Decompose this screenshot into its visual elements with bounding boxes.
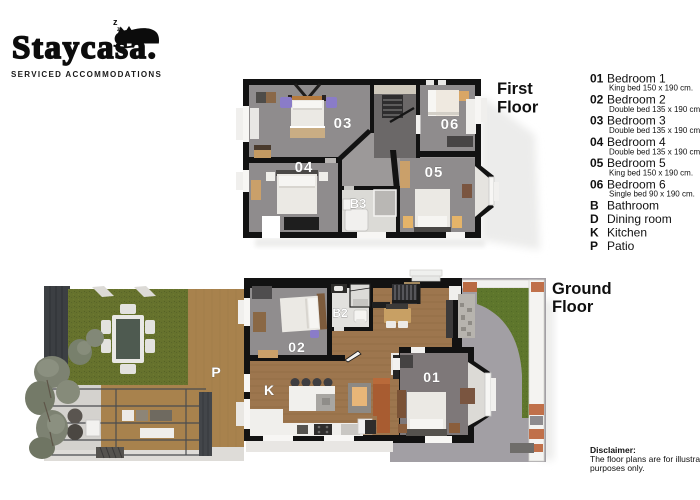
svg-text:05: 05	[425, 164, 444, 181]
svg-text:B2: B2	[332, 306, 348, 320]
svg-text:Double bed 135 x 190 cm.: Double bed 135 x 190 cm.	[609, 105, 700, 114]
svg-text:King bed 150 x 190 cm.: King bed 150 x 190 cm.	[609, 169, 693, 178]
svg-text:Double bed 135 x 190 cm.: Double bed 135 x 190 cm.	[609, 147, 700, 156]
svg-text:01: 01	[423, 369, 441, 385]
svg-text:Kitchen: Kitchen	[607, 226, 647, 240]
svg-text:D: D	[590, 212, 599, 226]
svg-text:SERVICED ACCOMMODATIONS: SERVICED ACCOMMODATIONS	[11, 70, 162, 79]
svg-text:Dining room: Dining room	[607, 212, 672, 226]
svg-text:z: z	[113, 17, 118, 27]
svg-text:Single bed 90 x 190 cm.: Single bed 90 x 190 cm.	[609, 190, 695, 199]
svg-text:Bathroom: Bathroom	[607, 199, 659, 213]
svg-text:06: 06	[590, 177, 604, 191]
svg-text:03: 03	[590, 114, 604, 128]
svg-text:04: 04	[295, 159, 314, 176]
svg-text:02: 02	[288, 339, 306, 355]
svg-text:06: 06	[441, 116, 460, 133]
svg-text:Floor: Floor	[497, 99, 539, 117]
svg-text:K: K	[264, 382, 274, 398]
svg-text:03: 03	[334, 115, 353, 132]
svg-text:purposes only.: purposes only.	[590, 463, 645, 473]
svg-text:z: z	[117, 27, 120, 33]
svg-text:B3: B3	[350, 196, 367, 211]
svg-text:04: 04	[590, 135, 604, 149]
svg-text:01: 01	[590, 71, 604, 85]
svg-text:P: P	[590, 239, 598, 253]
svg-text:P: P	[211, 364, 220, 380]
svg-text:02: 02	[590, 93, 604, 107]
svg-text:05: 05	[590, 156, 604, 170]
svg-text:Patio: Patio	[607, 239, 635, 253]
svg-text:Floor: Floor	[552, 298, 594, 316]
svg-text:First: First	[497, 80, 533, 98]
svg-text:K: K	[590, 226, 599, 240]
svg-text:King bed 150 x 190 cm.: King bed 150 x 190 cm.	[609, 84, 693, 93]
svg-text:Ground: Ground	[552, 280, 612, 298]
svg-text:B: B	[590, 199, 599, 213]
svg-text:Double bed 135 x 190 cm.: Double bed 135 x 190 cm.	[609, 126, 700, 135]
